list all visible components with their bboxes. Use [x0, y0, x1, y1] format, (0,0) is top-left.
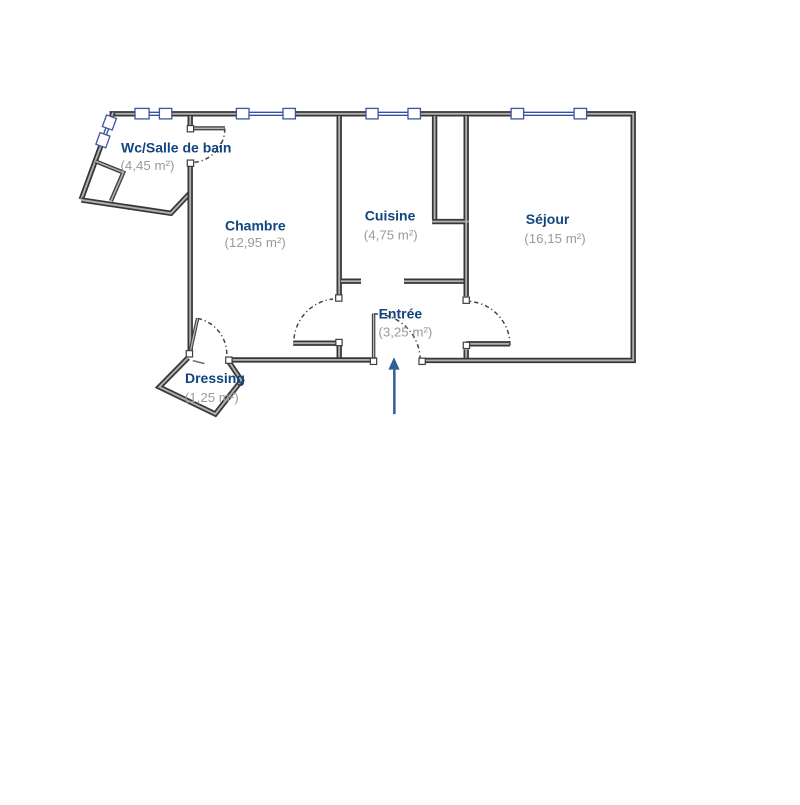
svg-text:Entrée: Entrée [379, 305, 423, 321]
svg-text:(3,25 m²): (3,25 m²) [378, 324, 432, 339]
svg-text:(1,25 m²): (1,25 m²) [185, 390, 239, 405]
svg-text:Wc/Salle de bain: Wc/Salle de bain [121, 139, 231, 155]
svg-text:Chambre: Chambre [225, 217, 286, 233]
svg-text:Cuisine: Cuisine [365, 207, 416, 223]
svg-text:Séjour: Séjour [526, 211, 570, 227]
svg-text:(12,95 m²): (12,95 m²) [225, 235, 286, 250]
svg-text:(4,75 m²): (4,75 m²) [364, 228, 418, 243]
svg-text:(4,45 m²): (4,45 m²) [121, 158, 175, 173]
svg-text:Dressing: Dressing [185, 370, 245, 386]
svg-text:(16,15 m²): (16,15 m²) [524, 231, 585, 246]
